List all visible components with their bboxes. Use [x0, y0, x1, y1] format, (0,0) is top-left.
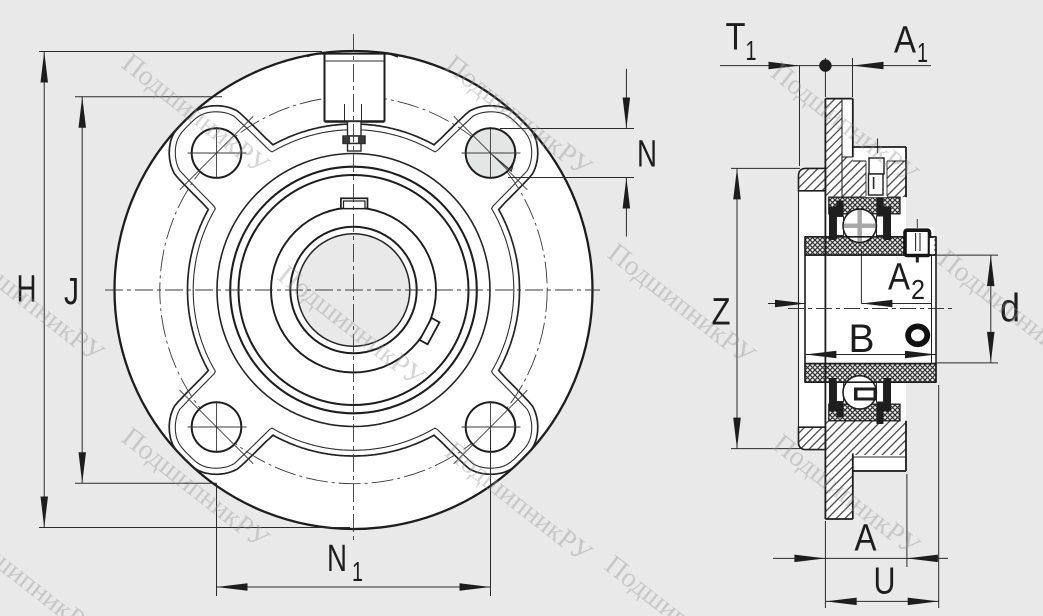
svg-text:T: T — [726, 17, 746, 59]
svg-text:A: A — [888, 257, 911, 299]
svg-text:1: 1 — [746, 35, 757, 66]
svg-text:A: A — [894, 20, 917, 62]
svg-text:N: N — [637, 134, 657, 176]
svg-text:J: J — [64, 271, 79, 313]
svg-text:1: 1 — [352, 556, 363, 587]
svg-text:N: N — [327, 538, 347, 580]
svg-text:1: 1 — [917, 37, 928, 68]
svg-text:2: 2 — [911, 274, 925, 305]
svg-text:B: B — [849, 317, 875, 361]
svg-text:U: U — [874, 561, 896, 603]
